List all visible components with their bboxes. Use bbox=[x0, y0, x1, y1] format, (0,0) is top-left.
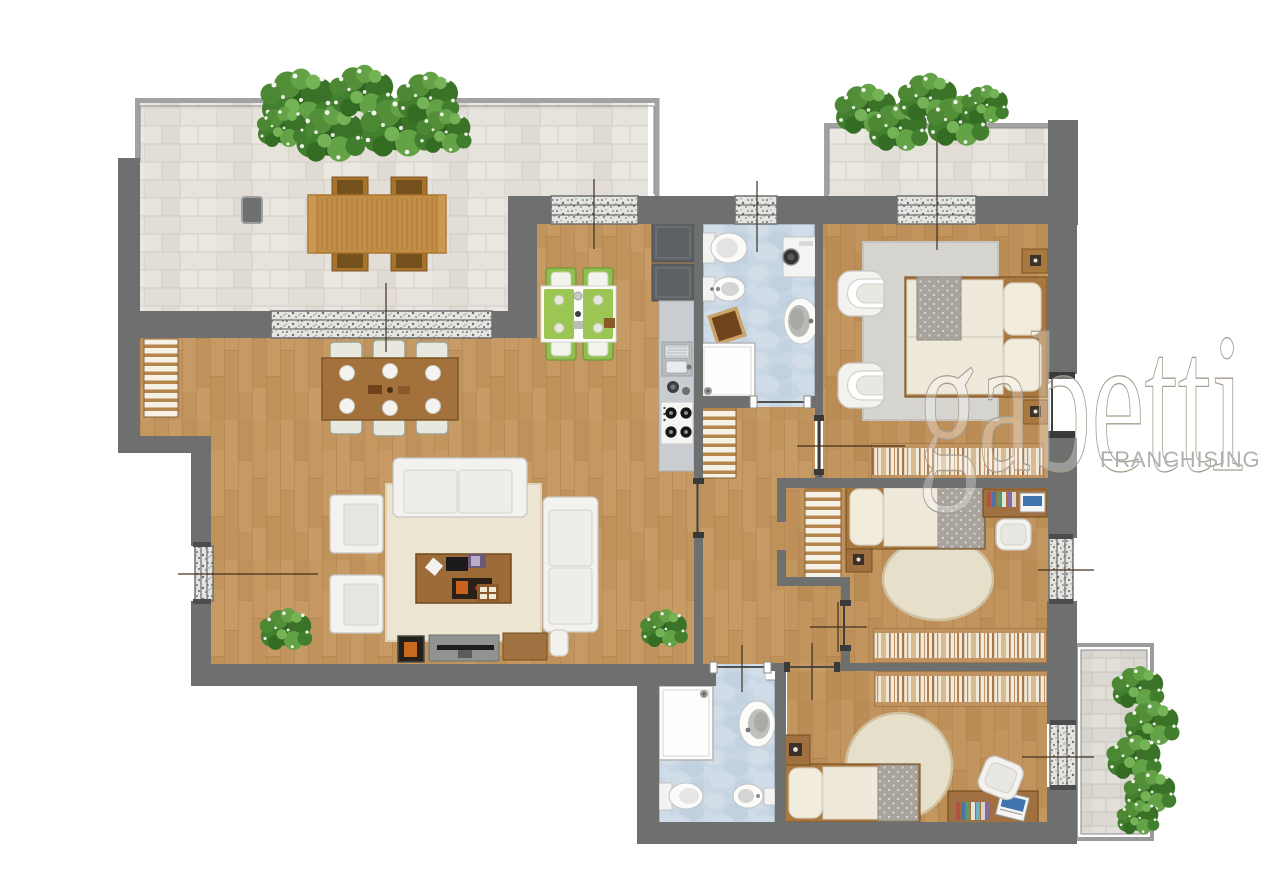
svg-text:FRANCHISING: FRANCHISING bbox=[1100, 447, 1260, 472]
svg-text:gabetti: gabetti bbox=[918, 292, 1245, 514]
